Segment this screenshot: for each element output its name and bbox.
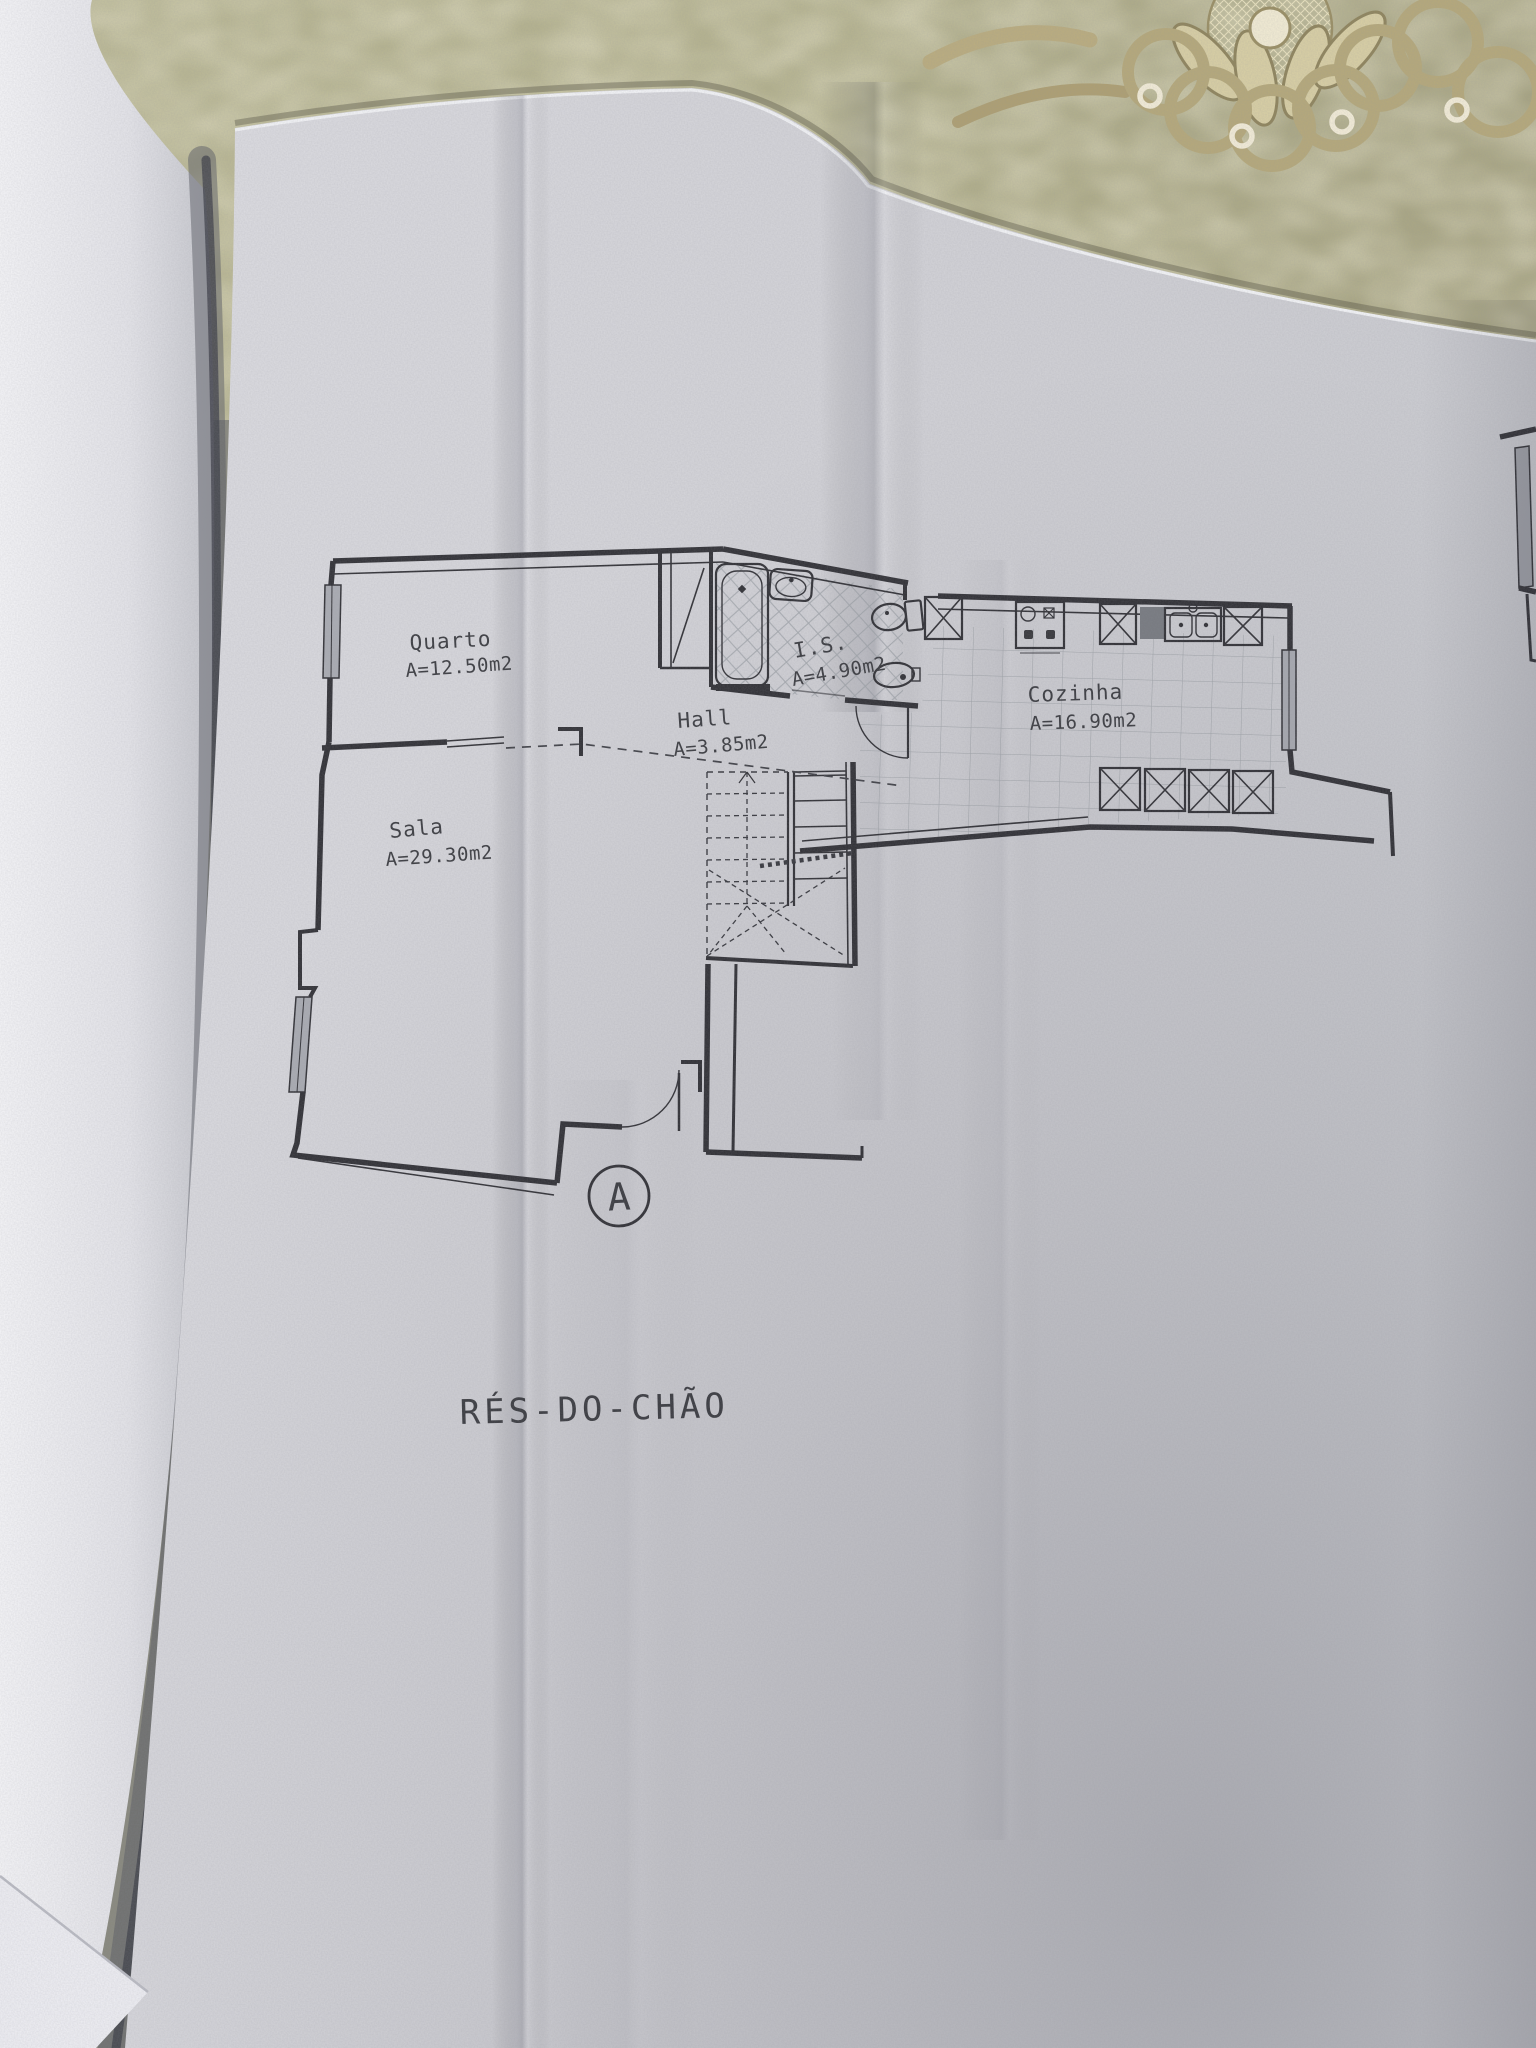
photo-of-floor-plan: Quarto A=12.50m2 I.S. A=4.90m2 Hall A=3.…	[0, 0, 1536, 2048]
photo-grain	[0, 0, 1536, 2048]
